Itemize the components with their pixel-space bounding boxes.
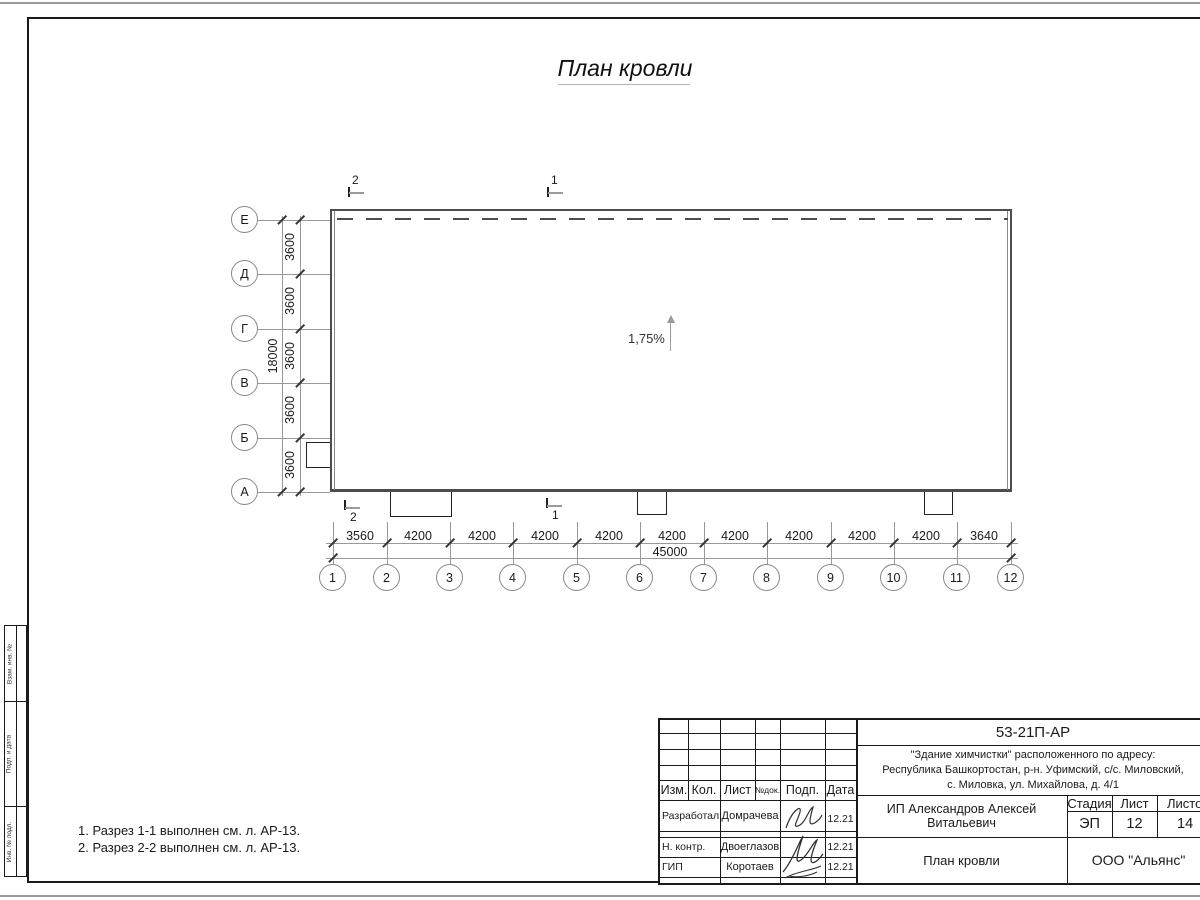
signature-korotaev-dvoeglazov xyxy=(779,832,825,880)
tb-stage-label: Стадия xyxy=(1067,795,1112,811)
tb-header-ndok: №док. xyxy=(755,780,780,800)
tb-company: ООО "Альянс" xyxy=(1067,837,1200,883)
roof-dashed-line xyxy=(337,218,1008,220)
section-mark-bottom-2-line xyxy=(345,507,360,509)
section-label-bottom-2: 2 xyxy=(350,510,357,524)
slope-arrow-head xyxy=(667,315,675,323)
tb-sheet-value: 12 xyxy=(1112,811,1157,837)
building-inner-wall-right xyxy=(1007,211,1008,490)
section-mark-top-1-line xyxy=(548,192,563,194)
axis-row-label: Е xyxy=(240,213,248,227)
col-dim: 3640 xyxy=(956,529,1012,543)
axis-row-label: А xyxy=(240,485,248,499)
col-dim: 4200 xyxy=(454,529,510,543)
stamp-label-inv: Инв. № подл. xyxy=(4,807,16,877)
section-mark-top-2-line xyxy=(349,192,364,194)
axis-col-8: 8 xyxy=(753,564,780,591)
col-dim: 4200 xyxy=(898,529,954,543)
paper-bottom-edge xyxy=(0,895,1200,897)
axis-col-label: 3 xyxy=(446,571,453,585)
col-dim: 4200 xyxy=(390,529,446,543)
axis-col-5: 5 xyxy=(563,564,590,591)
title-underline xyxy=(558,84,690,85)
axis-row-Б: Б xyxy=(231,424,258,451)
axis-col-label: 11 xyxy=(950,571,963,585)
section-mark-bottom-2 xyxy=(344,500,346,510)
tb-name-domracheva: Домрачева xyxy=(720,804,780,828)
section-label-bottom-1: 1 xyxy=(552,508,559,522)
row-dim: 3600 xyxy=(283,382,297,438)
porch-bottom-1 xyxy=(390,492,452,517)
tb-line xyxy=(660,733,856,734)
axis-row-В: В xyxy=(231,369,258,396)
title-block: Изм. Кол. Лист №док. Подп. Дата Разработ… xyxy=(658,718,1200,885)
tb-date-2: 12.21 xyxy=(825,837,856,857)
stamp-label-podp: Подп. и дата xyxy=(4,702,16,807)
axis-row-Г: Г xyxy=(231,315,258,342)
slope-label: 1,75% xyxy=(628,331,665,346)
axis-col-label: 6 xyxy=(636,571,643,585)
tb-address-line: "Здание химчистки" расположенного по адр… xyxy=(856,748,1200,763)
tb-sheet-label: Лист xyxy=(1112,795,1157,811)
tb-address-line: Республика Башкортостан, р-н. Уфимский, … xyxy=(856,763,1200,778)
drawing-sheet: План кровли 1,75% 2 1 2 1 3600 3600 3600… xyxy=(0,0,1200,900)
porch-bottom-3 xyxy=(924,492,953,515)
tb-header-list: Лист xyxy=(720,780,755,800)
axis-col-label: 8 xyxy=(763,571,770,585)
axis-col-11: 11 xyxy=(943,564,970,591)
axis-row-label: Б xyxy=(240,431,248,445)
page-title: План кровли xyxy=(460,55,790,82)
axis-col-3: 3 xyxy=(436,564,463,591)
tb-name-dvoeglazov: Двоеглазов xyxy=(720,837,780,857)
tb-date-1: 12.21 xyxy=(825,808,856,830)
tb-line xyxy=(660,800,856,801)
stamp-label-vzam: Взам. инв. № xyxy=(5,626,17,703)
axis-col-label: 9 xyxy=(827,571,834,585)
tb-line xyxy=(660,749,856,750)
col-dim-total: 45000 xyxy=(642,545,698,559)
tb-drawing-title: План кровли xyxy=(856,837,1067,883)
row-dim: 3600 xyxy=(283,437,297,493)
porch-bottom-2 xyxy=(637,492,667,515)
tb-address: "Здание химчистки" расположенного по адр… xyxy=(856,748,1200,793)
axis-col-label: 1 xyxy=(329,571,336,585)
section-label-top-2: 2 xyxy=(352,173,359,187)
row-dim: 3600 xyxy=(283,273,297,329)
section-mark-bottom-1 xyxy=(546,498,548,508)
axis-col-12: 12 xyxy=(997,564,1024,591)
row-dim-total: 18000 xyxy=(266,328,280,384)
axis-col-4: 4 xyxy=(499,564,526,591)
note-line: 2. Разрез 2-2 выполнен см. л. АР-13. xyxy=(78,839,300,856)
axis-row-А: А xyxy=(231,478,258,505)
axis-col-1: 1 xyxy=(319,564,346,591)
axis-col-2: 2 xyxy=(373,564,400,591)
slope-arrow xyxy=(670,321,671,351)
tb-name-korotaev: Коротаев xyxy=(720,857,780,877)
building-outline xyxy=(330,209,1012,492)
tb-address-line: с. Миловка, ул. Михайлова, д. 4/1 xyxy=(856,778,1200,793)
axis-col-label: 5 xyxy=(573,571,580,585)
tb-role-nkontr: Н. контр. xyxy=(662,837,720,857)
tb-header-izm: Изм. xyxy=(660,780,688,800)
axis-col-6: 6 xyxy=(626,564,653,591)
tb-date-3: 12.21 xyxy=(825,857,856,877)
axis-row-Д: Д xyxy=(231,260,258,287)
tb-header-kol: Кол. xyxy=(688,780,720,800)
axis-row-label: Г xyxy=(241,322,248,336)
porch-left xyxy=(306,442,330,468)
signature-domracheva xyxy=(782,802,824,834)
row-dim: 3600 xyxy=(283,328,297,384)
tb-sheets-label: Листов xyxy=(1157,795,1200,811)
tb-role-gip: ГИП xyxy=(662,857,720,877)
axis-col-label: 12 xyxy=(1004,571,1018,585)
axis-row-Е: Е xyxy=(231,206,258,233)
tb-sheets-value: 14 xyxy=(1157,811,1200,837)
tb-stage-value: ЭП xyxy=(1067,811,1112,837)
section-mark-bottom-1-line xyxy=(547,505,562,507)
tb-role-razrabotal: Разработал xyxy=(662,804,720,828)
row-dim: 3600 xyxy=(283,219,297,275)
col-dim: 4200 xyxy=(834,529,890,543)
paper-top-edge xyxy=(0,2,1200,4)
axis-col-label: 2 xyxy=(383,571,390,585)
tb-doc-number: 53-21П-АР xyxy=(856,720,1200,745)
tb-line xyxy=(660,831,856,832)
col-dim: 4200 xyxy=(707,529,763,543)
axis-row-label: Д xyxy=(240,267,248,281)
axis-col-label: 7 xyxy=(700,571,707,585)
tb-header-podp: Подп. xyxy=(780,780,825,800)
notes: 1. Разрез 1-1 выполнен см. л. АР-13. 2. … xyxy=(78,822,300,856)
axis-col-7: 7 xyxy=(690,564,717,591)
building-inner-wall-left xyxy=(334,211,335,490)
note-line: 1. Разрез 1-1 выполнен см. л. АР-13. xyxy=(78,822,300,839)
tb-line xyxy=(660,765,856,766)
dim-line-row xyxy=(300,216,301,496)
tb-client: ИП Александров Алексей Витальевич xyxy=(856,795,1067,837)
tb-line xyxy=(660,877,856,878)
col-dim: 4200 xyxy=(644,529,700,543)
axis-col-9: 9 xyxy=(817,564,844,591)
col-dim: 3560 xyxy=(332,529,388,543)
col-dim: 4200 xyxy=(581,529,637,543)
axis-col-10: 10 xyxy=(880,564,907,591)
tb-header-data: Дата xyxy=(825,780,856,800)
dim-line-col xyxy=(326,543,1018,544)
section-label-top-1: 1 xyxy=(551,173,558,187)
axis-col-label: 4 xyxy=(509,571,516,585)
tb-line xyxy=(856,745,1200,746)
axis-row-label: В xyxy=(240,376,248,390)
axis-col-label: 10 xyxy=(887,571,901,585)
col-dim: 4200 xyxy=(771,529,827,543)
col-dim: 4200 xyxy=(517,529,573,543)
